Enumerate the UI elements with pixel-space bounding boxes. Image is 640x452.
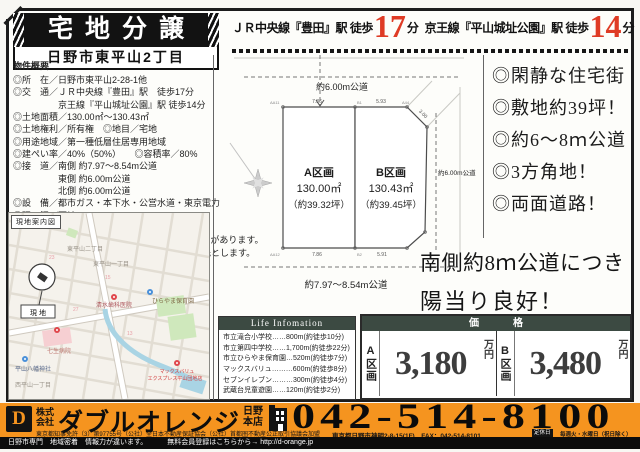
access-line-2: 京王線『平山城址公園』駅 徒歩 [425, 19, 589, 40]
life-information-box: Life Infomation 市立滝合小学校……800m(約徒歩10分) 市立… [218, 316, 356, 400]
holiday-badge: 定休日 [532, 429, 553, 437]
access-minutes-2: 14 [589, 13, 621, 40]
svg-text:AA11: AA11 [270, 100, 280, 105]
lot-a-name: A区画 [304, 166, 334, 179]
lot-b-name: B区画 [376, 166, 406, 179]
branch-top: 日野 [243, 406, 263, 417]
overview-row: ◎建ぺい率／40%（50%） ◎容積率／80% [13, 148, 213, 160]
title-stripe-left-icon [13, 13, 24, 47]
lot-a-tsubo: （約39.32坪） [288, 199, 350, 211]
svg-text:AA12: AA12 [270, 252, 281, 257]
map-label-area2: 東平山二丁目 [67, 245, 103, 253]
store-pin-dot-icon [176, 362, 178, 364]
map-label-hospital: 七生病院 [47, 347, 71, 355]
price-lot-b-amount: 3,480 [515, 345, 617, 383]
map-label-shrine: 平山八幡神社 [15, 365, 51, 373]
svg-text:7.86: 7.86 [312, 99, 322, 105]
svg-text:13: 13 [127, 331, 133, 337]
strip-tagline: 日野市専門 地域密着 情報力が違います。 [8, 439, 147, 446]
shrine-pin-dot-icon [24, 358, 26, 360]
overview-heading: 物件概要 [13, 59, 213, 72]
page-title-text: 宅地分譲 [48, 16, 196, 43]
catch-copy: 南側約8ｍ公道につき 陽当り良好！ [420, 247, 636, 316]
nursery-pin-dot-icon [149, 291, 151, 293]
price-lot-b-unit: 万円 [616, 339, 626, 396]
price-body: A区画 3,180 万円 B区画 3,480 万円 [362, 331, 630, 396]
map-label-dental: 清水歯科医院 [96, 301, 132, 309]
svg-text:B2: B2 [357, 252, 363, 257]
branch-name: 日野 本店 [243, 406, 263, 428]
access-line-1: ＪＲ中央線『豊田』駅 徒歩 [232, 19, 373, 40]
company-logo: D [6, 406, 32, 432]
lot-b-area: 130.43㎡ [369, 182, 414, 195]
life-item: 市立ひらやま保育園…520m(約徒歩7分) [223, 354, 351, 365]
vertical-divider-right [483, 55, 484, 238]
overview-row: ◎接 道／南側 約7.97〜8.54m公道 [13, 160, 213, 172]
highlight-item: ◎敷地約39坪！ [492, 92, 634, 124]
price-lot-a-amount: 3,180 [380, 345, 482, 383]
svg-text:B1: B1 [357, 100, 363, 105]
highlight-item: ◎3方角地！ [492, 156, 634, 188]
map-label-store1: マックスバリュ [160, 369, 195, 375]
branch-bottom: 本店 [243, 417, 263, 428]
catch-line-2: 陽当り良好！ [420, 284, 636, 316]
site-callout-label: 現 地 [30, 308, 46, 317]
overview-row: ◎土地面積／130.00㎡〜130.43㎡ [13, 111, 213, 123]
hospital-pin-dot-icon [56, 329, 58, 331]
catch-line-1: 南側約8ｍ公道につき [420, 247, 636, 277]
access-unit-1: 分 [407, 19, 419, 40]
highlight-item: ◎閑静な住宅街 [492, 60, 634, 92]
overview-row: ◎所 在／日野市東平山2-28-1他 [13, 74, 213, 86]
overview-row: 北側 約6.00m公道 [13, 185, 213, 197]
map-title-label: 現地案内図 [11, 215, 61, 229]
svg-text:7.86: 7.86 [312, 252, 322, 258]
map-label-store2: エクスプレス平山団地店 [148, 375, 203, 382]
overview-row: ◎設 備／都市ガス・本下水・公営水道・東京電力 [13, 197, 213, 209]
overview-row: ◎土地権利／所有権 ◎地目／宅地 [13, 123, 213, 135]
price-table: 価 格 A区画 3,180 万円 B区画 3,480 万円 [360, 314, 632, 400]
life-item: 市立滝合小学校……800m(約徒歩10分) [223, 333, 351, 344]
map-label-nursery: ひらやま保育園 [152, 297, 194, 305]
road-east-label: 約6.00m公道 [438, 168, 476, 177]
access-minutes-1: 17 [374, 13, 406, 40]
life-information-header: Life Infomation [219, 317, 355, 330]
highlight-item: ◎両面道路！ [492, 188, 634, 220]
overview-row: ◎用途地域／第一種低層住居専用地域 [13, 136, 213, 148]
svg-text:5.93: 5.93 [376, 99, 386, 105]
compass-star-icon [230, 143, 272, 197]
bottom-strip: 日野市専門 地域密着 情報力が違います。 無料会員登録はこちらから→ http:… [0, 437, 640, 449]
svg-text:A44: A44 [402, 100, 410, 105]
map-label-area1: 東平山一丁目 [93, 260, 129, 268]
company-prefix: 株式 会社 [36, 407, 54, 428]
map-label-west: 西平山一丁目 [15, 381, 51, 389]
lot-a-area: 130.00㎡ [297, 182, 342, 195]
page-title: 宅地分譲 [13, 13, 219, 47]
strip-url: 無料会員登録はこちらから→ http://d-orange.jp [167, 439, 313, 446]
life-item: セブンイレブン………300m(約徒歩4分) [223, 376, 351, 387]
company-prefix-top: 株式 [36, 407, 54, 417]
price-header: 価 格 [362, 316, 630, 331]
phone-number: 042-514-8100 [292, 401, 615, 431]
price-lot-a-label: A区画 [362, 331, 380, 396]
station-access-header: ＪＲ中央線『豊田』駅 徒歩 17 分 京王線『平山城址公園』駅 徒歩 14 分 [232, 13, 634, 40]
overview-row: 京王線『平山城址公園』駅 徒歩14分 [13, 99, 213, 111]
life-item: 市立第四中学校……1,700m(約徒歩22分) [223, 344, 351, 355]
road-north-label: 約6.00m公道 [316, 81, 368, 92]
price-lot-b-label: B区画 [497, 331, 515, 396]
highlight-list: ◎閑静な住宅街 ◎敷地約39坪！ ◎約6〜8ｍ公道 ◎3方角地！ ◎両面道路！ [492, 60, 634, 220]
highlight-item: ◎約6〜8ｍ公道 [492, 124, 634, 156]
title-stripe-right-icon [208, 13, 219, 47]
company-prefix-bottom: 会社 [36, 417, 54, 427]
overview-row: ◎交 通／ＪＲ中央線『豊田』駅 徒歩17分 [13, 86, 213, 98]
svg-text:15: 15 [105, 275, 111, 281]
lot-b-tsubo: （約39.45坪） [360, 199, 422, 211]
dental-pin-dot-icon [113, 296, 115, 298]
price-lot-a-unit: 万円 [482, 339, 492, 396]
map-canvas: 23 15 27 13 東平山二丁目 東平山一丁目 清水歯科医院 [9, 213, 209, 399]
dotted-separator [232, 49, 630, 53]
life-item: マックスバリュ………600m(約徒歩8分) [223, 365, 351, 376]
life-information-list: 市立滝合小学校……800m(約徒歩10分) 市立第四中学校……1,700m(約徒… [219, 330, 355, 400]
svg-text:5.91: 5.91 [377, 252, 387, 258]
svg-text:23: 23 [49, 255, 55, 261]
overview-row: 東側 約6.00m公道 [13, 173, 213, 185]
svg-text:27: 27 [73, 307, 79, 313]
road-south-label: 約7.97〜8.54m公道 [305, 279, 388, 291]
access-unit-2: 分 [622, 19, 634, 40]
price-cell-b: B区画 3,480 万円 [497, 331, 631, 396]
price-cell-a: A区画 3,180 万円 [362, 331, 497, 396]
location-map: 現地案内図 [8, 212, 210, 400]
flyer-page: 宅地分譲 日野市東平山2丁目 ＪＲ中央線『豊田』駅 徒歩 17 分 京王線『平山… [0, 0, 640, 452]
